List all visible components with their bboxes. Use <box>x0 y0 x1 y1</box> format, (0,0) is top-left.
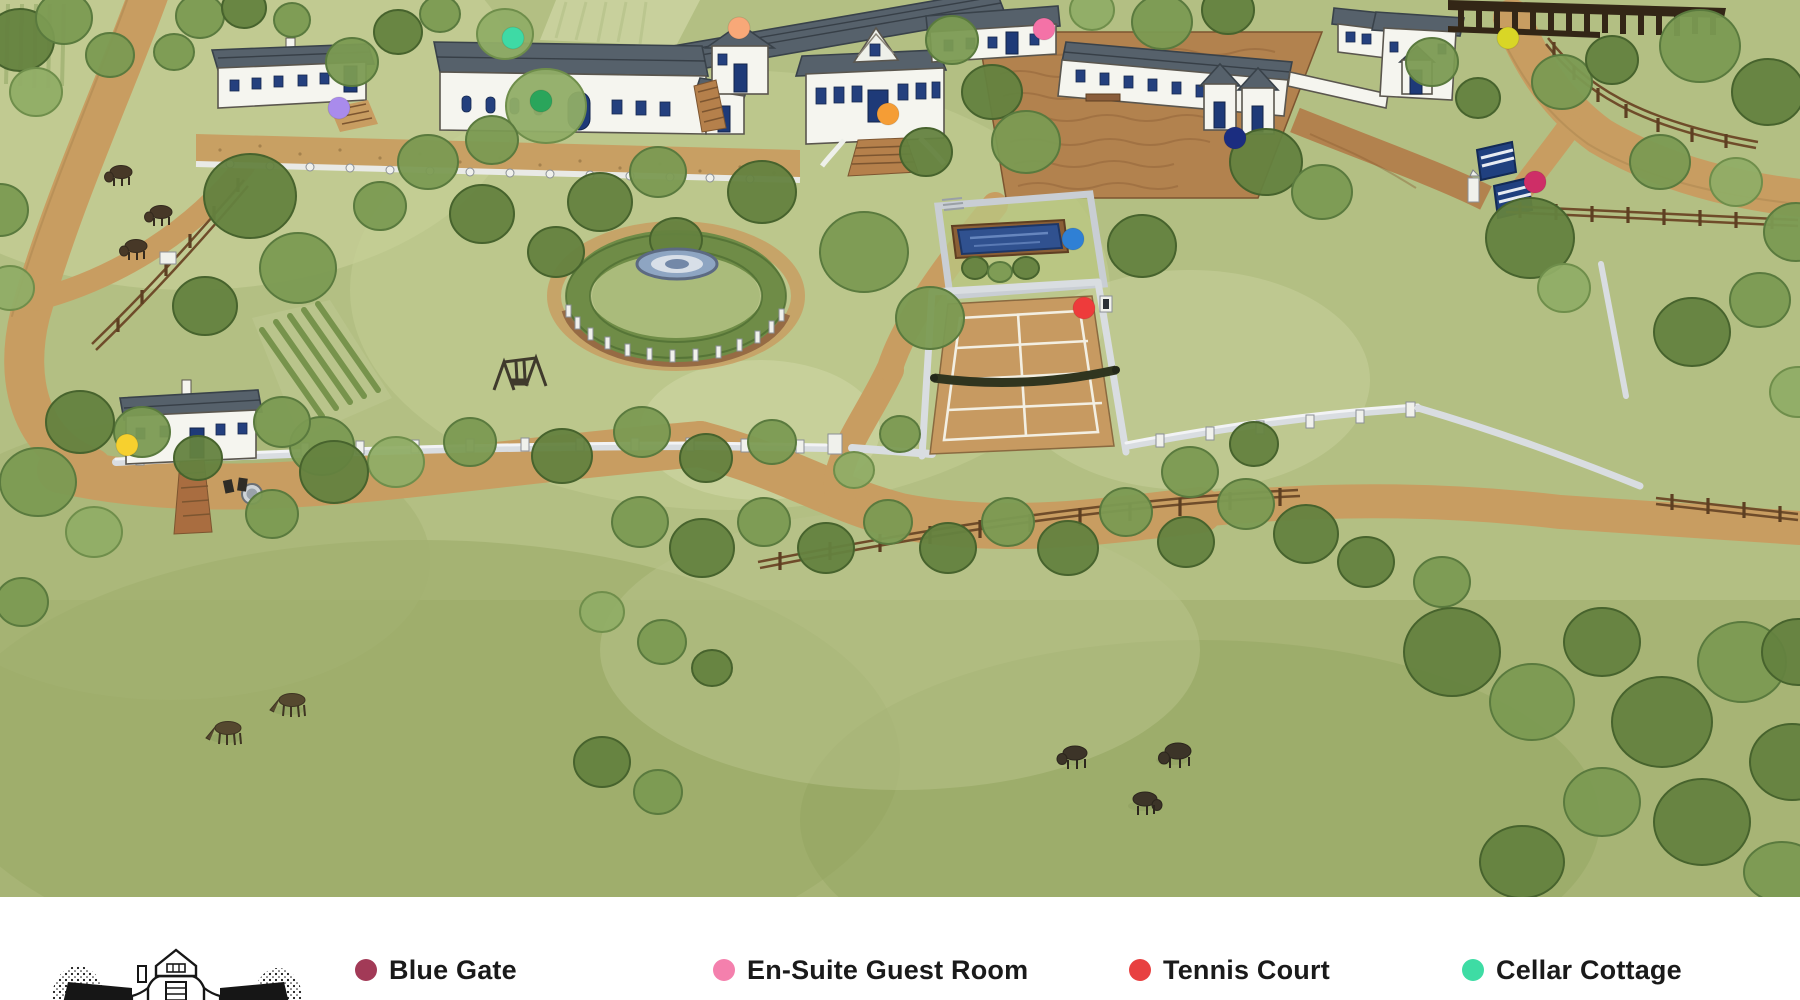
legend-dot-icon <box>1462 959 1484 981</box>
legend-item-en-suite-guest-room[interactable]: En-Suite Guest Room <box>713 952 1028 988</box>
map-marker-orange[interactable] <box>877 103 899 125</box>
map-marker-blue[interactable] <box>1062 228 1084 250</box>
legend-item-label: Blue Gate <box>389 955 517 986</box>
legend-dot-icon <box>713 959 735 981</box>
map-marker-green[interactable] <box>530 90 552 112</box>
legend-item-blue-gate[interactable]: Blue Gate <box>355 952 517 988</box>
map-marker-lavender[interactable] <box>328 97 350 119</box>
legend-item-label: Tennis Court <box>1163 955 1330 986</box>
estate-map-page: Blue GateEn-Suite Guest RoomTennis Court… <box>0 0 1800 1000</box>
legend-dot-icon <box>1129 959 1151 981</box>
map-marker-cellar-cottage[interactable] <box>502 27 524 49</box>
map-marker-navy[interactable] <box>1224 127 1246 149</box>
legend-item-label: Cellar Cottage <box>1496 955 1682 986</box>
formal-garden <box>554 218 798 364</box>
map-marker-peach[interactable] <box>728 17 750 39</box>
map-marker-blue-gate[interactable] <box>1524 171 1546 193</box>
legend-dot-icon <box>355 959 377 981</box>
map-marker-yellow[interactable] <box>116 434 138 456</box>
map-marker-chartreuse[interactable] <box>1497 27 1519 49</box>
legend-bar: Blue GateEn-Suite Guest RoomTennis Court… <box>0 897 1800 1000</box>
fountain-pond <box>637 249 717 279</box>
legend-item-label: En-Suite Guest Room <box>747 955 1028 986</box>
map-marker-tennis-court[interactable] <box>1073 297 1095 319</box>
map-marker-en-suite-guest-room[interactable] <box>1033 18 1055 40</box>
estate-logo-illustration <box>52 936 302 1000</box>
estate-map-illustration <box>0 0 1800 897</box>
legend-item-cellar-cottage[interactable]: Cellar Cottage <box>1462 952 1682 988</box>
legend-item-tennis-court[interactable]: Tennis Court <box>1129 952 1330 988</box>
